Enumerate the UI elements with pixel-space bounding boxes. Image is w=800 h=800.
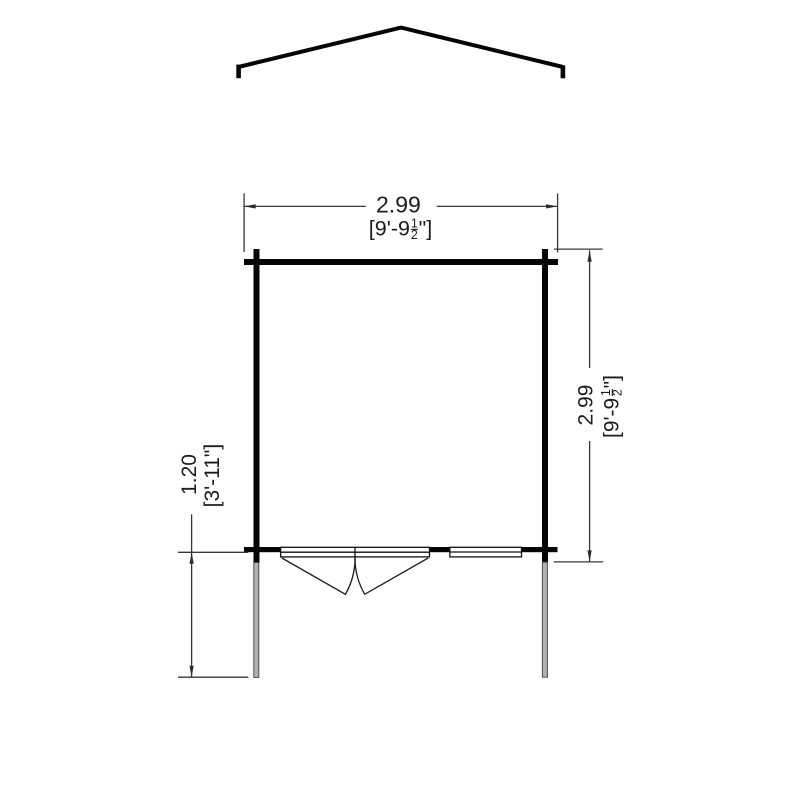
svg-text:[9'-9: [9'-9 <box>601 398 624 438</box>
svg-text:1.20: 1.20 <box>178 454 201 495</box>
svg-text:2: 2 <box>611 389 625 396</box>
svg-text:2.99: 2.99 <box>376 192 421 218</box>
svg-text:2: 2 <box>411 228 418 242</box>
svg-text:[9'-9: [9'-9 <box>369 217 410 241</box>
svg-text:"]: "] <box>419 217 433 241</box>
svg-text:[3'-11"]: [3'-11"] <box>201 444 224 508</box>
svg-text:2.99: 2.99 <box>575 385 598 426</box>
svg-text:"]: "] <box>601 375 624 388</box>
